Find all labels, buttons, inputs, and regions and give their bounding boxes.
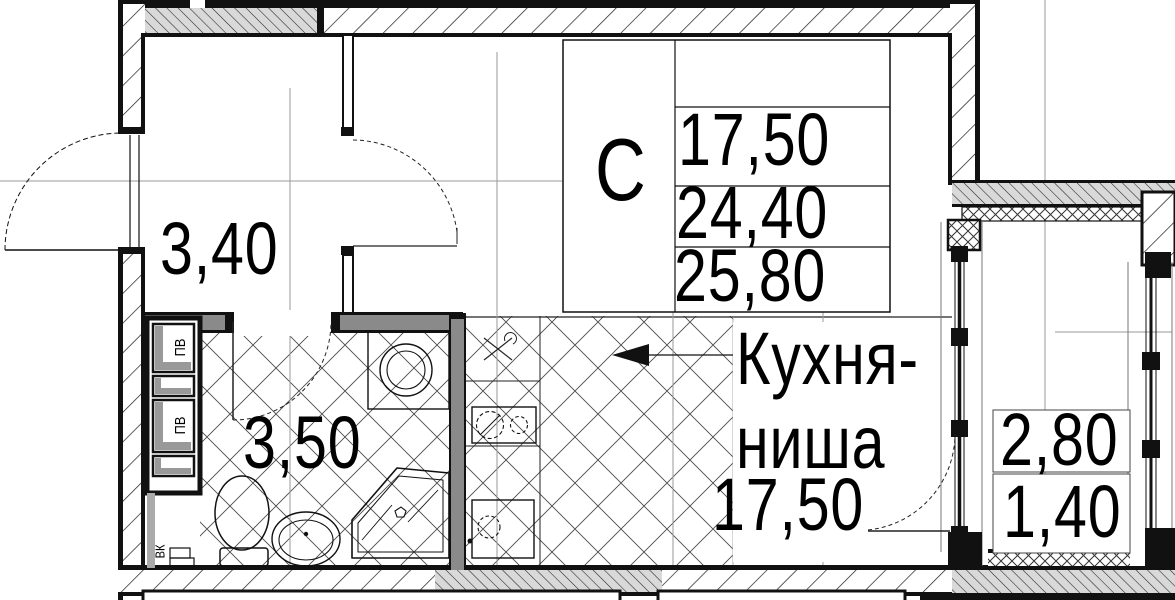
balcony-window-door-block bbox=[941, 220, 982, 570]
hallway-area-label: 3,40 bbox=[160, 212, 278, 286]
left-exterior-wall bbox=[118, 0, 145, 600]
balcony-right-glazing bbox=[1142, 252, 1175, 570]
floor-plan: С 17,50 24,40 25,80 3,40 3,50 Кухня- ниш… bbox=[0, 0, 1175, 600]
bathroom-area-label: 3,50 bbox=[243, 406, 361, 480]
top-exterior-wall bbox=[120, 0, 977, 37]
unit-type-label: С bbox=[595, 126, 647, 214]
living-area-value: 17,50 bbox=[678, 103, 830, 177]
hallway-door bbox=[353, 140, 457, 246]
balcony-area-reduced-label: 1,40 bbox=[1003, 475, 1121, 549]
right-exterior-wall bbox=[948, 0, 980, 185]
entrance-door bbox=[5, 133, 139, 250]
vent-shaft-1-label: ПВ bbox=[173, 339, 188, 357]
kitchen-name-line1: Кухня- bbox=[736, 322, 919, 396]
vent-shaft-2-label: ПВ bbox=[173, 417, 188, 435]
hallway-partition bbox=[341, 35, 354, 315]
water-shaft-label: ВК bbox=[154, 545, 167, 559]
floor-plan-drawing bbox=[0, 0, 1175, 600]
kitchen-area-label: 17,50 bbox=[712, 468, 864, 542]
total-area-with-balcony-value: 25,80 bbox=[674, 239, 826, 313]
balcony-area-label: 2,80 bbox=[1000, 403, 1118, 477]
